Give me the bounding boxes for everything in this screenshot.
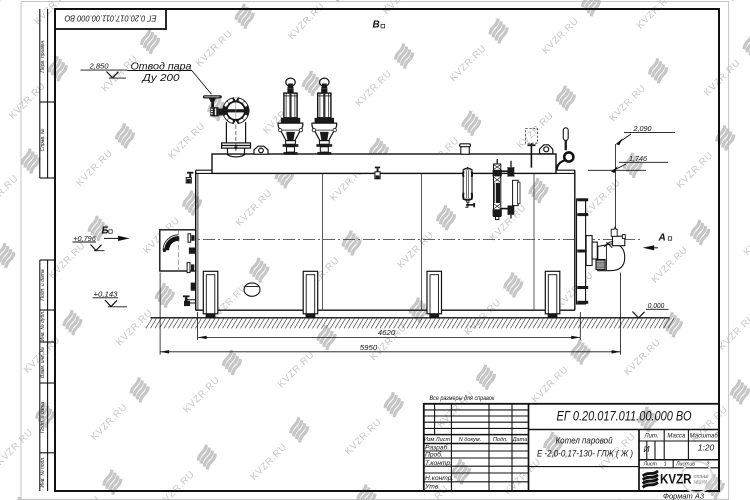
svg-text:ЕГ 0.20.017.011.00.000 ВО: ЕГ 0.20.017.011.00.000 ВО — [64, 14, 156, 24]
svg-text:Лист: Лист — [435, 437, 451, 443]
svg-text:+0,143: +0,143 — [94, 290, 119, 299]
svg-text:1: 1 — [664, 462, 667, 468]
svg-text:Инв. № подл.: Инв. № подл. — [40, 456, 46, 487]
svg-text:Формат А3: Формат А3 — [663, 492, 705, 500]
svg-text:2,090: 2,090 — [633, 124, 653, 133]
svg-text:Котел паровой: Котел паровой — [556, 436, 614, 447]
svg-text:2,850: 2,850 — [88, 62, 109, 71]
svg-text:Подп. и дата: Подп. и дата — [40, 402, 46, 434]
svg-text:Все размеры для справок: Все размеры для справок — [430, 394, 496, 402]
svg-text:Проб.: Проб. — [425, 451, 443, 459]
svg-text:Перв. примен.: Перв. примен. — [40, 39, 46, 72]
svg-text:Т.контр.: Т.контр. — [425, 460, 452, 467]
svg-text:Подп. и дата: Подп. и дата — [40, 269, 46, 301]
svg-text:Взам. инв. №: Взам. инв. № — [40, 346, 46, 378]
svg-text:Лист: Лист — [643, 462, 658, 468]
svg-text:Инв. № дубл.: Инв. № дубл. — [40, 311, 46, 342]
svg-text:Изм: Изм — [424, 437, 435, 443]
svg-text:Дата: Дата — [512, 437, 528, 443]
svg-text:0,000: 0,000 — [648, 301, 665, 310]
svg-text:Б: Б — [102, 225, 109, 236]
svg-text:N докум.: N докум. — [459, 437, 482, 443]
svg-text:ЕГ 0.20.017.011.00.000 ВО: ЕГ 0.20.017.011.00.000 ВО — [557, 408, 692, 424]
svg-text:KVZR: KVZR — [660, 472, 692, 487]
svg-text:1,746: 1,746 — [629, 154, 648, 163]
svg-text:Масса: Масса — [667, 434, 685, 440]
svg-text:Разраб.: Разраб. — [425, 444, 449, 452]
svg-text:А: А — [658, 232, 666, 243]
svg-text:Подп.: Подп. — [493, 437, 508, 443]
svg-text:ЗАВОД РЭП: ЗАВОД РЭП — [694, 480, 708, 485]
svg-text:5950: 5950 — [360, 345, 378, 352]
svg-text:Масштаб: Масштаб — [690, 434, 719, 440]
svg-text:Ду 200: Ду 200 — [141, 72, 179, 84]
svg-text:Справ. №: Справ. № — [40, 128, 46, 151]
svg-text:Утв.: Утв. — [424, 484, 440, 491]
svg-text:Н.контр.: Н.контр. — [425, 475, 453, 482]
svg-text:И: И — [644, 444, 651, 454]
svg-text:В: В — [373, 20, 380, 31]
svg-text:1:20: 1:20 — [698, 443, 715, 453]
svg-text:Е -2,0-0,17-130- ГЛЖ ( Ж ): Е -2,0-0,17-130- ГЛЖ ( Ж ) — [537, 449, 633, 460]
svg-text:4620: 4620 — [378, 330, 396, 337]
svg-text:КОТЕЛЬНЫЙ: КОТЕЛЬНЫЙ — [694, 474, 709, 479]
svg-text:Лит.: Лит. — [643, 434, 658, 440]
